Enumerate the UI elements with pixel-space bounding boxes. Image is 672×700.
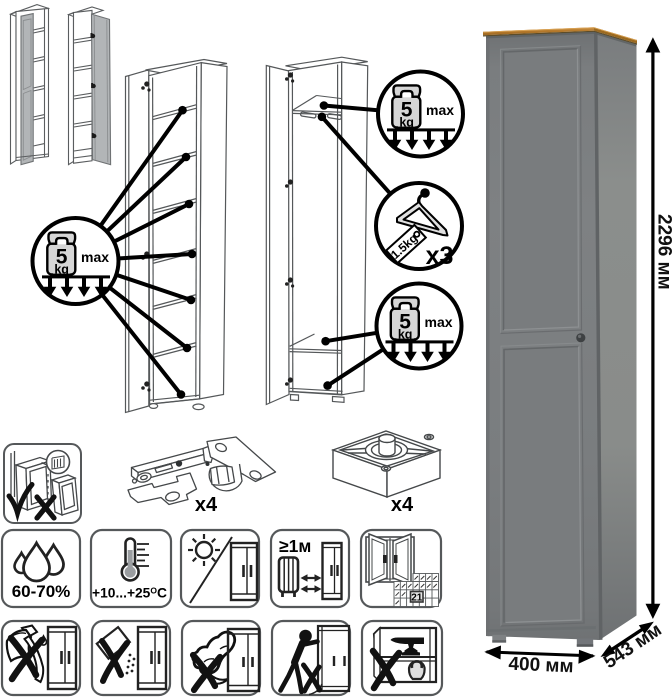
svg-text:60-70%: 60-70%	[12, 582, 71, 601]
svg-text:400 мм: 400 мм	[508, 654, 574, 678]
svg-text:x3: x3	[426, 242, 454, 270]
svg-text:x4: x4	[391, 494, 414, 516]
svg-text:≥1м: ≥1м	[279, 536, 311, 556]
svg-text:x4: x4	[195, 494, 218, 516]
svg-text:2296 мм: 2296 мм	[654, 214, 672, 290]
svg-text:21: 21	[411, 592, 423, 603]
